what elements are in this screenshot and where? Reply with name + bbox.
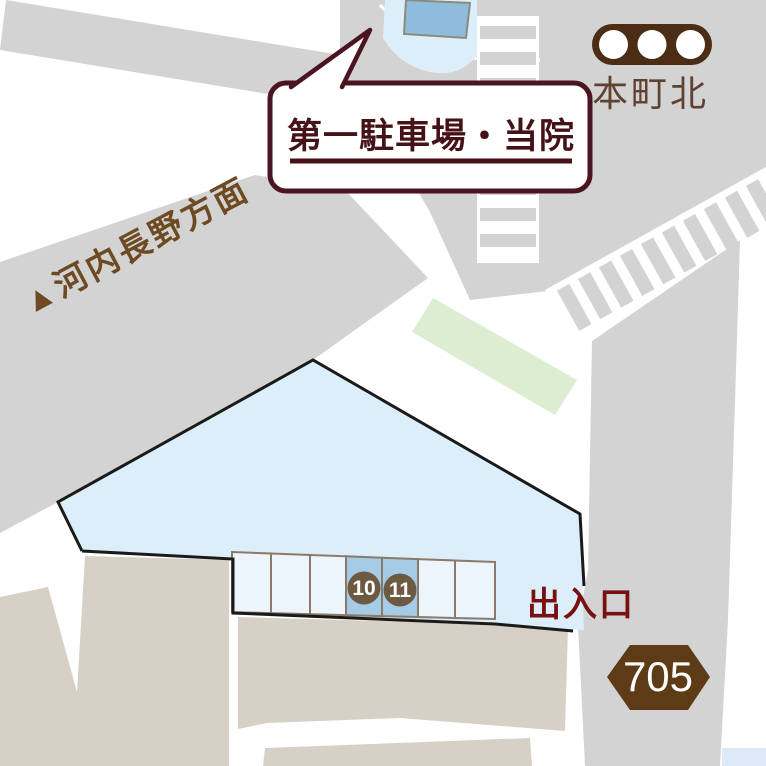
parking-stall	[455, 561, 495, 620]
parking-stall	[232, 552, 271, 613]
traffic-light-icon	[592, 24, 712, 65]
stall-10-number: 10	[352, 577, 375, 600]
parking-stall	[418, 559, 455, 618]
corner-blue-patch	[722, 748, 766, 766]
parking-map: 10 11 出入口 705 ▲河内長野方面 本町北 第一駐車場・当院	[0, 0, 766, 766]
callout-label: 第一駐車場・当院	[287, 117, 575, 156]
stall-11-number: 11	[389, 579, 412, 602]
route-badge-number: 705	[623, 653, 693, 700]
entrance-label: 出入口	[527, 586, 635, 624]
parking-stall	[271, 554, 310, 615]
clinic-building	[404, 0, 470, 38]
parking-stall	[310, 555, 346, 615]
intersection-label: 本町北	[592, 73, 709, 114]
block-bottom-center	[238, 617, 568, 731]
